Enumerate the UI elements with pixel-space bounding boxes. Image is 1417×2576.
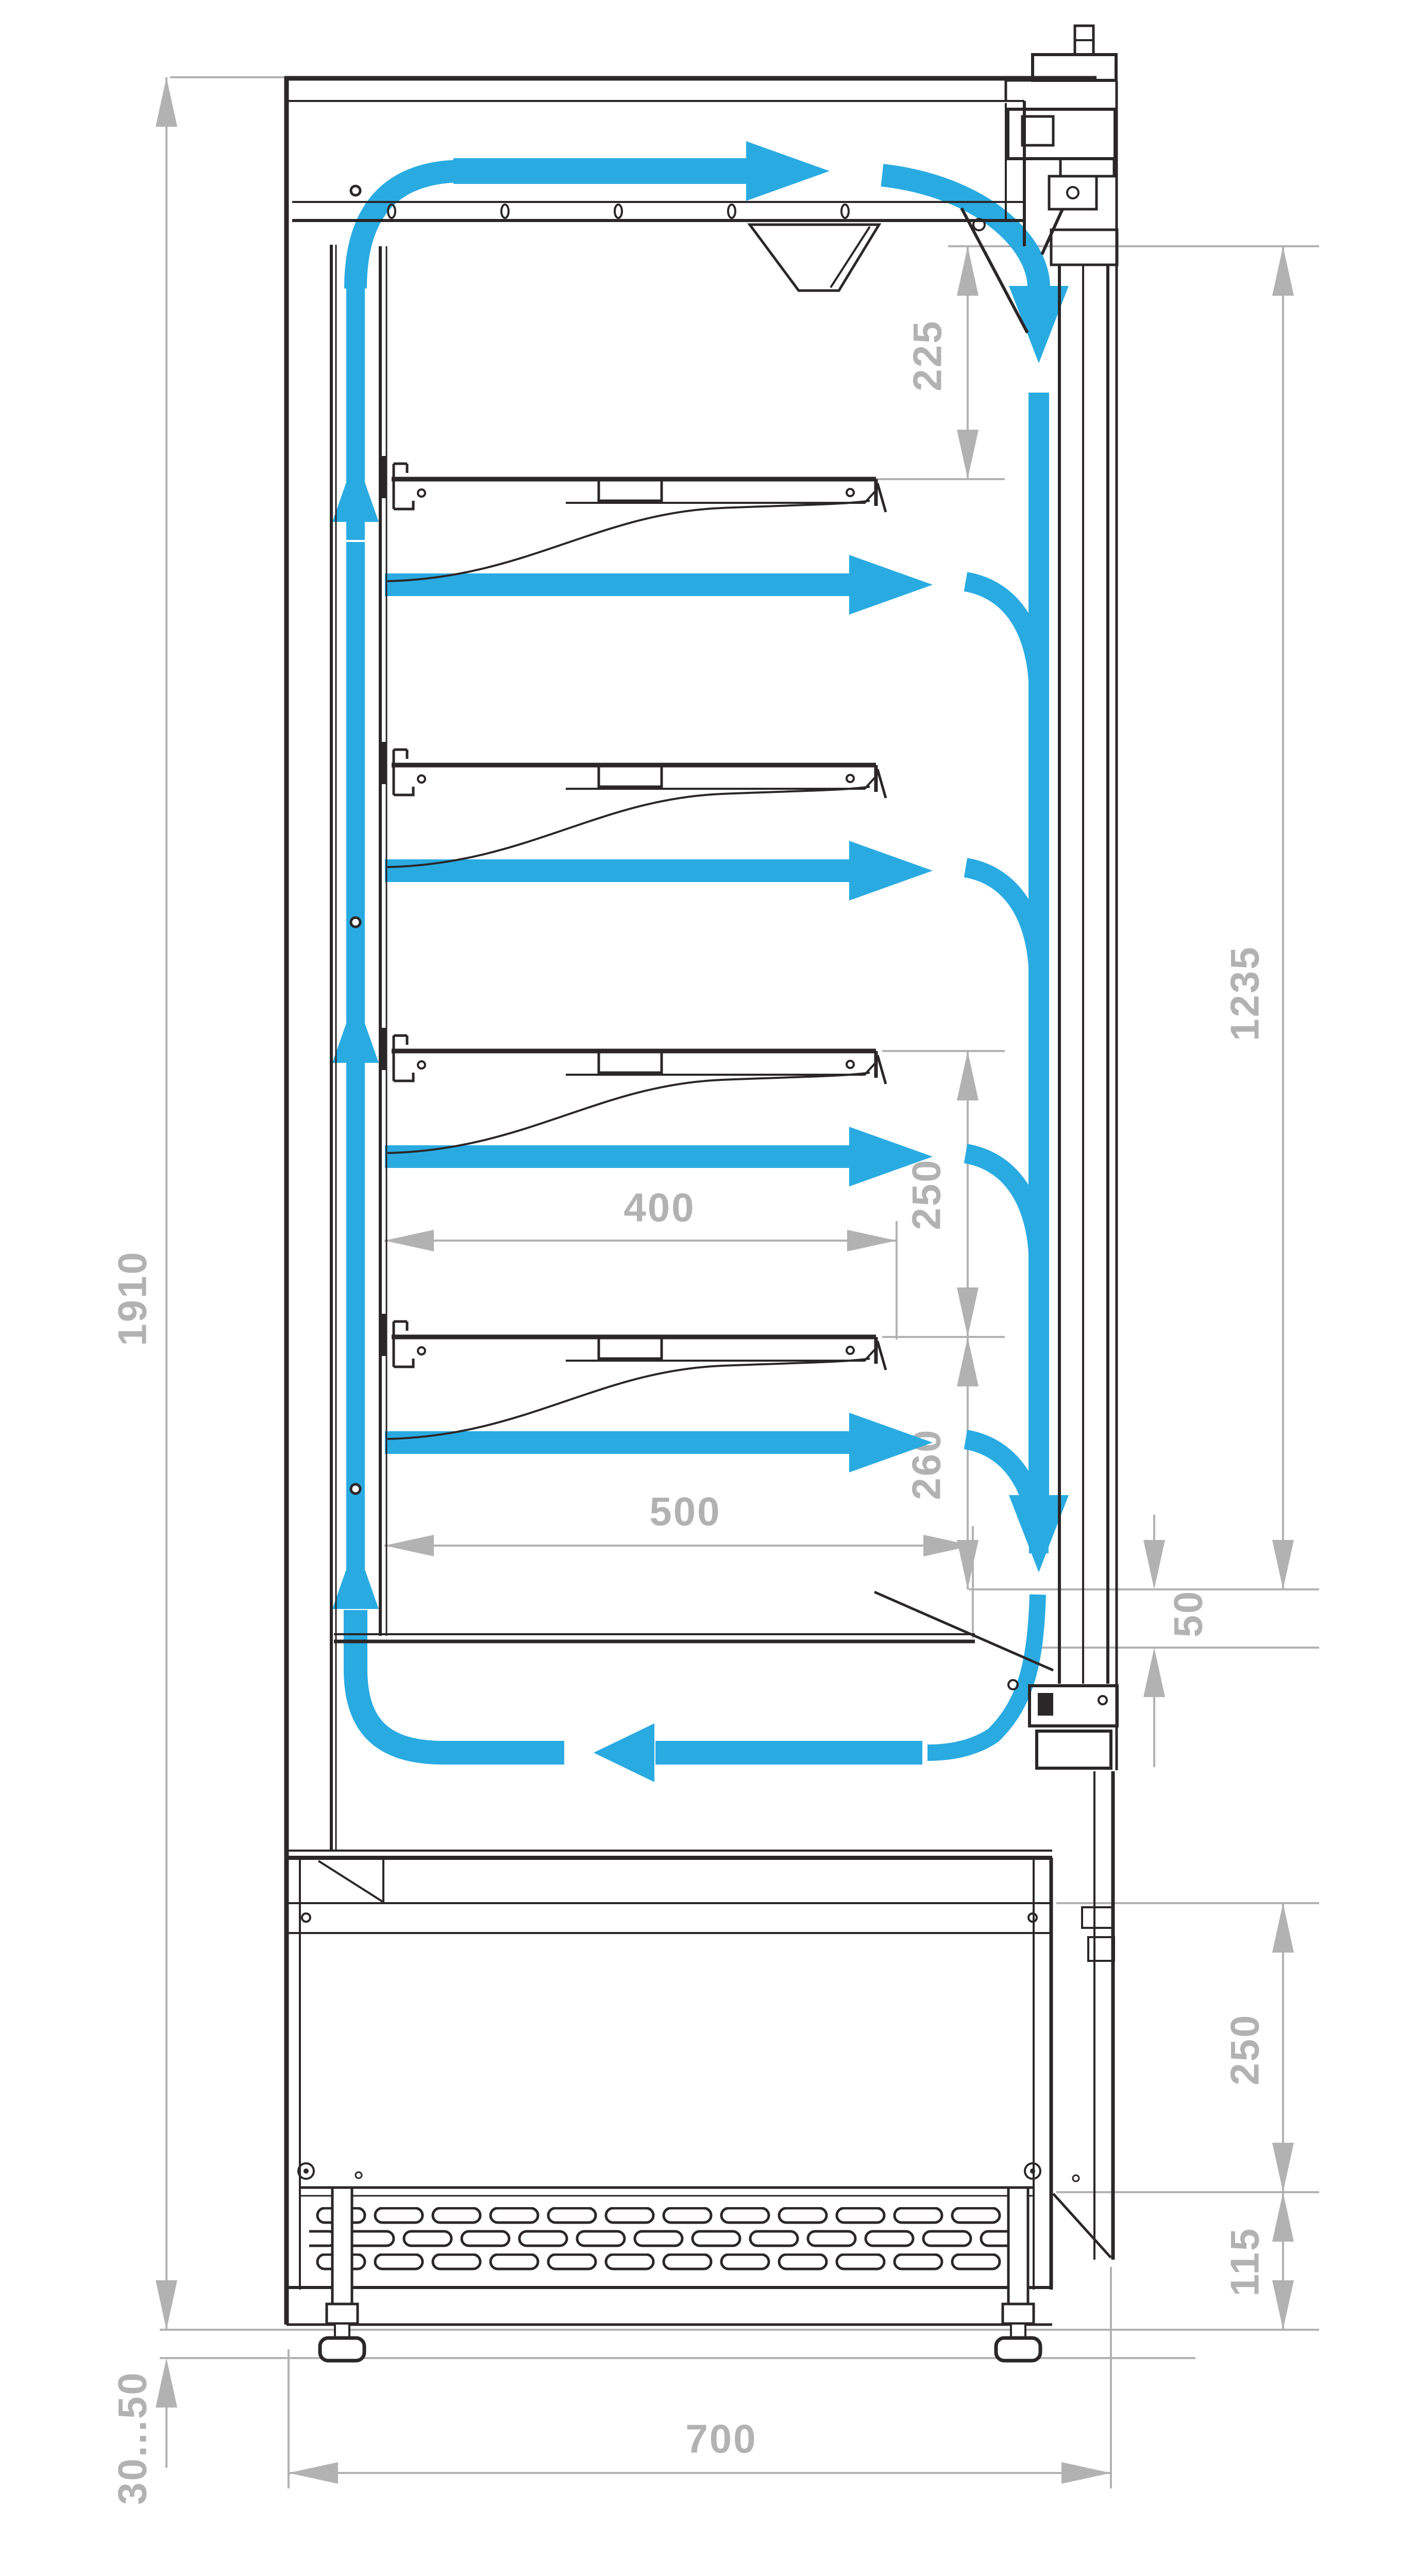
dimension-label-machine-height: 250 xyxy=(1222,2013,1268,2085)
vent-hole xyxy=(728,205,735,218)
bottom-deck xyxy=(334,1592,1053,1689)
airflow-rear-duct xyxy=(332,268,564,1753)
shelf-2 xyxy=(380,742,886,867)
dimension-label-top-clearance: 225 xyxy=(905,319,950,391)
dimension-label-shelf-pitch: 250 xyxy=(904,1158,949,1230)
cabinet-structure xyxy=(284,26,1117,2361)
dimension-overall-depth: 700 xyxy=(289,2267,1111,2488)
light-baffle xyxy=(750,225,879,291)
duct-perforation xyxy=(351,918,360,927)
airflow-canopy xyxy=(356,141,1039,289)
dimension-foot-range: 30...50 xyxy=(110,2226,177,2505)
cabinet-cross-section-drawing: 1910 30...50 225 250 260 xyxy=(0,0,1417,2576)
dimension-shelf-depth: 400 xyxy=(384,1185,897,1340)
airflow-bottom-return xyxy=(594,1723,922,1782)
dimension-label-air-column: 1235 xyxy=(1222,945,1268,1041)
dimension-top-clearance: 225 xyxy=(905,246,979,479)
shelf-3 xyxy=(380,1028,886,1153)
airflow-arrows xyxy=(332,141,1069,1782)
technical-drawing-page: 1910 30...50 225 250 260 xyxy=(0,0,1417,2576)
dimension-outlet-gap: 50 xyxy=(1143,1515,1211,1767)
dimension-label-overall-height: 1910 xyxy=(110,1250,155,1346)
dimension-label-outlet-gap: 50 xyxy=(1166,1590,1211,1638)
dimension-overall-height: 1910 xyxy=(110,77,177,2330)
vent-hole xyxy=(615,205,622,218)
dimension-label-foot-range: 30...50 xyxy=(110,2371,155,2505)
ventilation-grille xyxy=(309,2205,1028,2271)
duct-perforation xyxy=(351,186,360,195)
shelf-4 xyxy=(380,1314,886,1439)
corner-screws xyxy=(298,2163,1079,2181)
duct-perforation xyxy=(351,1484,360,1494)
base-unit xyxy=(286,1771,1114,2361)
door-bottom-rail xyxy=(1030,1686,1117,1768)
screw xyxy=(302,1913,310,1922)
dimension-label-bottom-shelf-depth: 500 xyxy=(649,1489,721,1534)
airflow-under-shelf-1 xyxy=(385,555,1039,696)
vent-hole xyxy=(501,205,509,218)
shelf-1 xyxy=(380,456,886,581)
airflow-under-shelf-2 xyxy=(385,841,1039,981)
dimension-label-shelf-depth: 400 xyxy=(623,1185,695,1230)
dimension-lines: 1910 30...50 225 250 260 xyxy=(110,77,1319,2505)
dimension-shelf-pitch: 250 xyxy=(904,1051,979,1337)
intake-ramp xyxy=(874,1592,1053,1670)
dimension-label-overall-depth: 700 xyxy=(685,2416,757,2462)
dimension-air-column: 1235 xyxy=(1222,246,1294,1589)
vent-hole xyxy=(841,205,849,218)
dimension-machine-height: 250 xyxy=(1222,1903,1294,2192)
dimension-label-grille-height: 115 xyxy=(1222,2227,1268,2297)
dimension-bottom-shelf-depth: 500 xyxy=(384,1489,973,1638)
dimension-grille-height: 115 xyxy=(1222,2192,1294,2330)
